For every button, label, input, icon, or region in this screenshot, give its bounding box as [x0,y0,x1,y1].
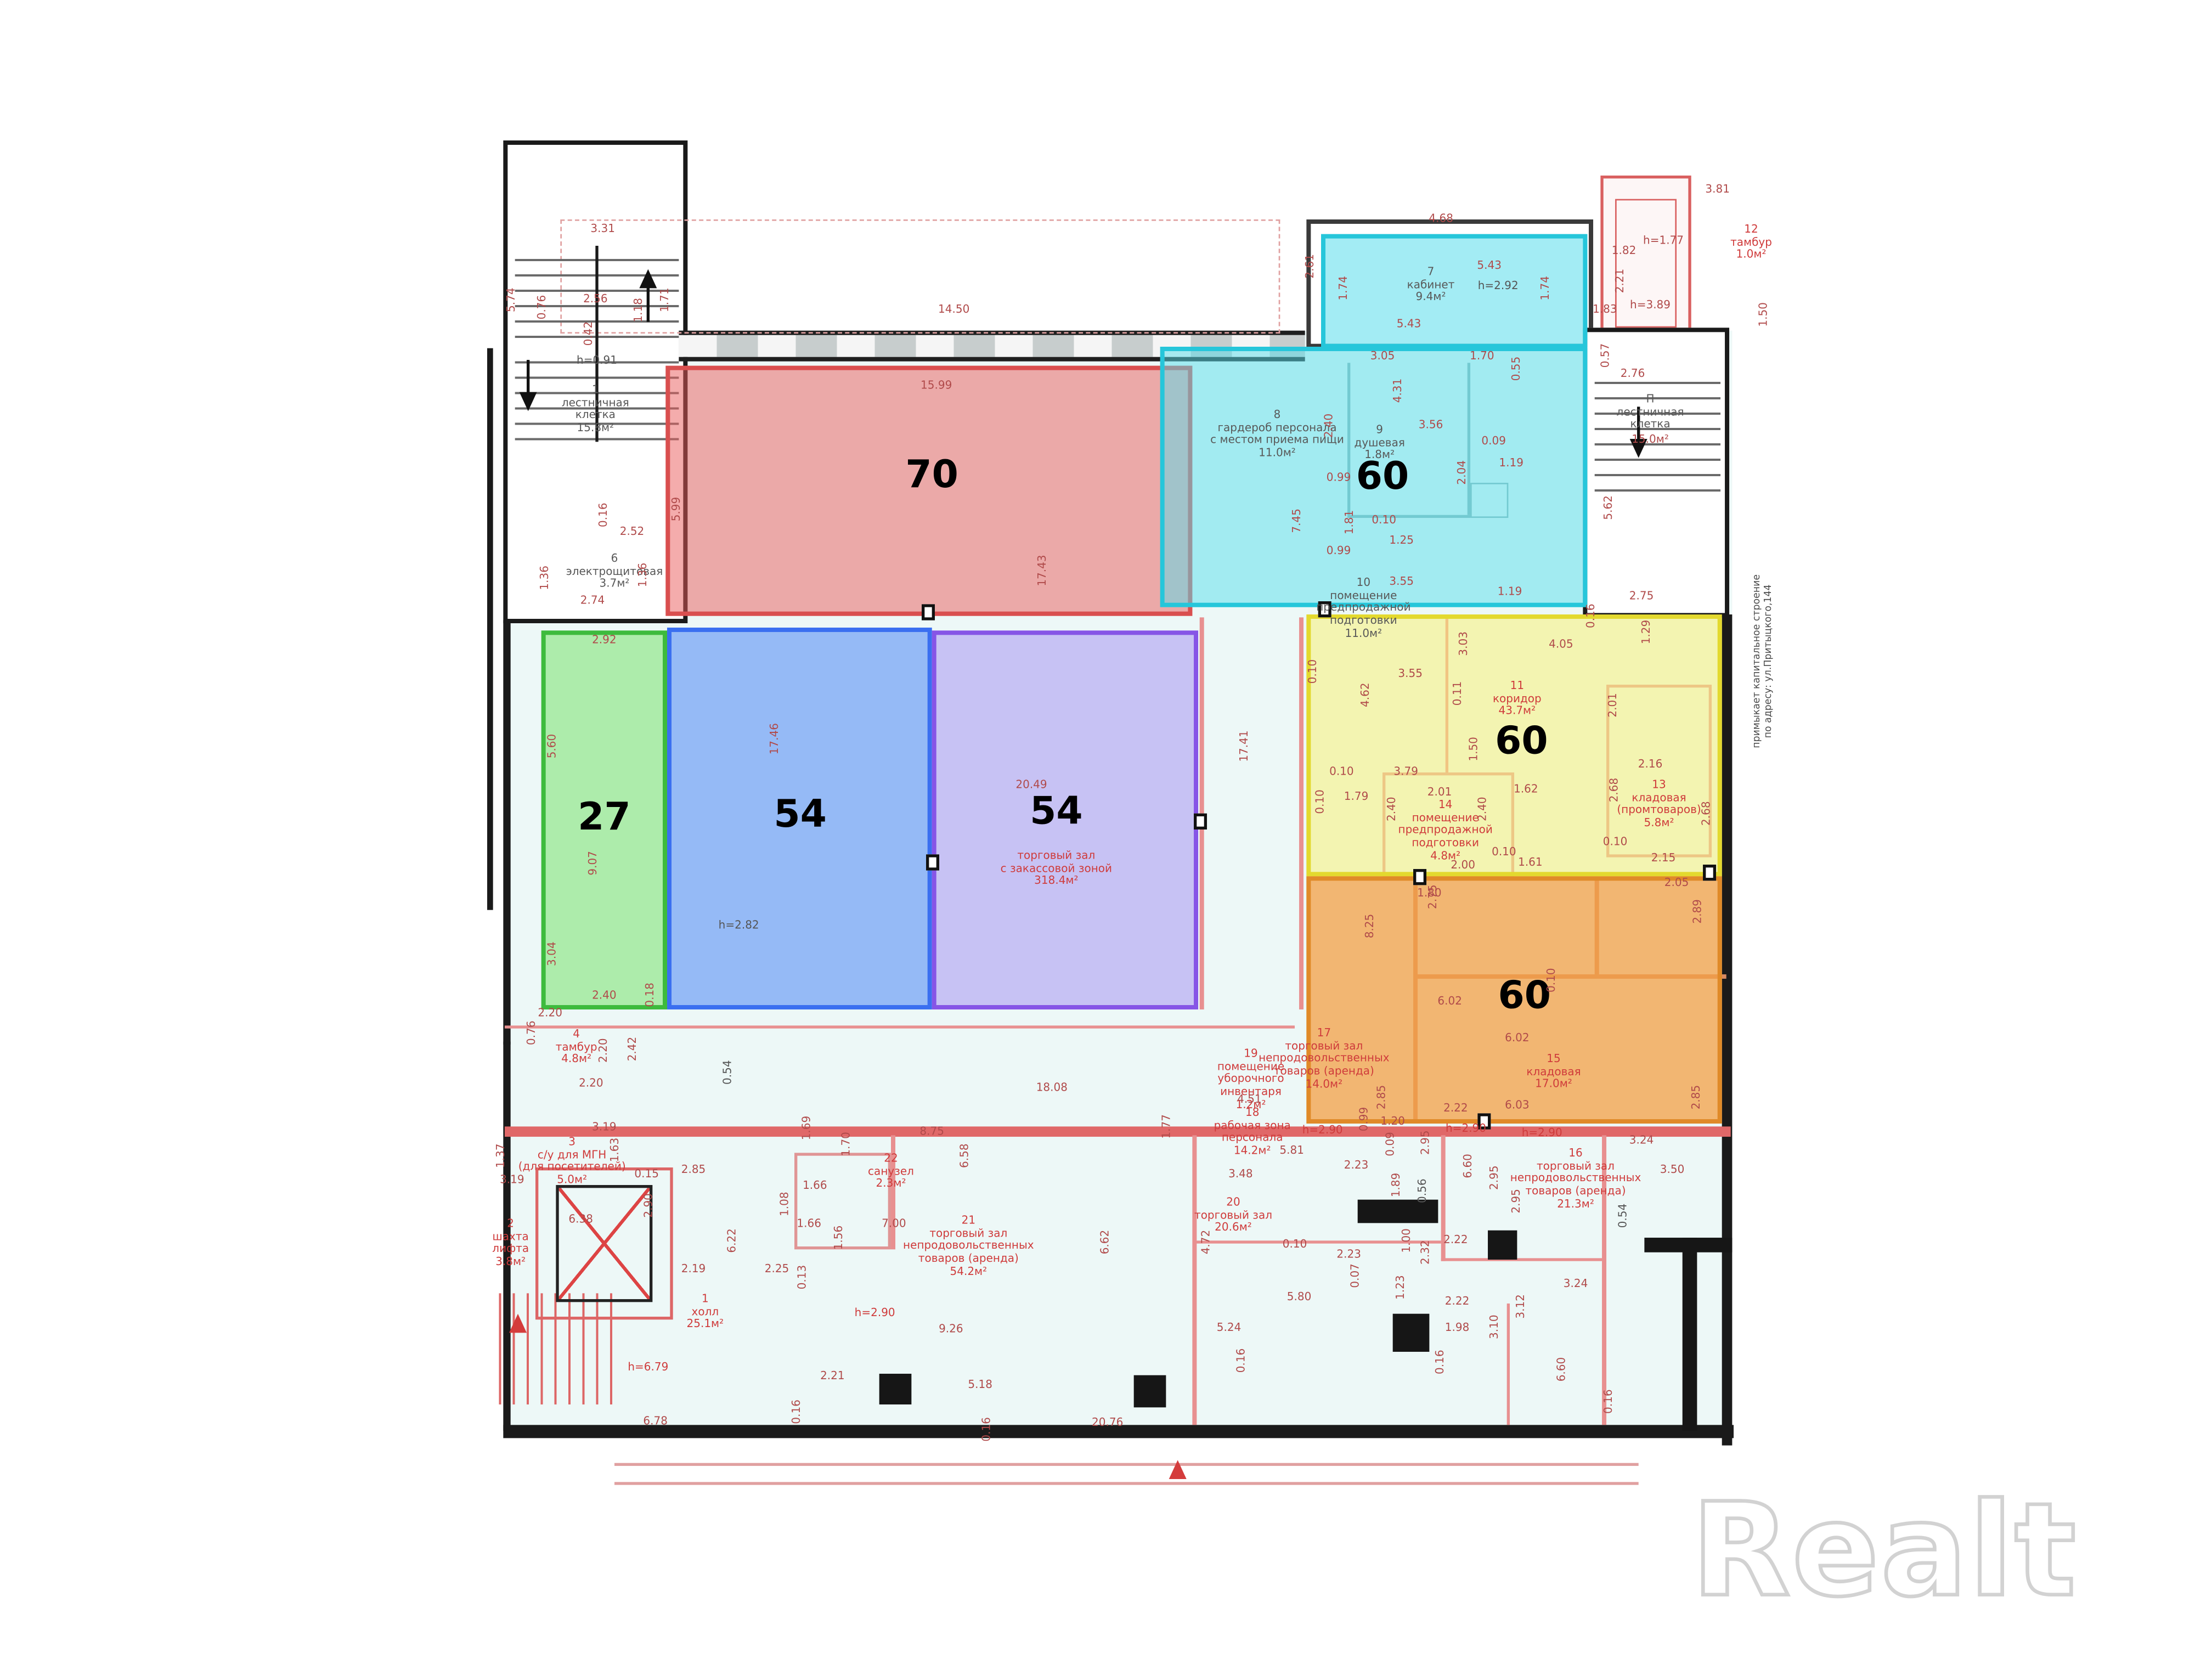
plan-annotation: 2.90 [644,1193,656,1218]
plan-annotation: 2 шахта лифта 3.8м² [492,1218,529,1269]
plan-annotation: 6.03 [1505,1100,1530,1113]
plan-annotation: 2.95 [1489,1165,1502,1190]
plan-annotation: 6.62 [1100,1230,1113,1255]
plan-annotation: 1.83 [1593,304,1617,317]
plan-annotation: 0.10 [1307,659,1320,684]
plan-annotation: 0.10 [1372,515,1396,527]
plan-annotation: 0.76 [537,295,549,320]
plan-annotation: 0.09 [1481,436,1506,448]
plan-annotation: 2.92 [592,635,617,647]
plan-annotation: 8.25 [1364,914,1377,939]
plan-annotation: 17.46 [769,723,782,754]
plan-annotation: примыкает капитальное строение по адресу… [1751,574,1775,748]
plan-annotation: 2.22 [1445,1296,1470,1308]
plan-annotation: h=2.90 [1522,1127,1562,1140]
plan-annotation: 3.56 [1419,420,1443,432]
plan-annotation: 5.74 [506,287,518,312]
plan-annotation: 2.74 [580,595,605,608]
plan-annotation: 2.20 [598,1038,611,1063]
plan-annotation: h=3.89 [1630,300,1671,312]
plan-annotation: 1.89 [1391,1173,1403,1198]
plan-annotation: 4.72 [1201,1230,1214,1255]
plan-annotation: 27 [578,797,631,841]
plan-annotation: 19 помещение уборочного инвентаря 1.2м² [1217,1048,1284,1111]
plan-annotation: 5.18 [968,1379,992,1392]
plan-annotation: 3.50 [1660,1164,1685,1177]
plan-annotation: 2.21 [820,1370,845,1383]
plan-annotation: 60 [1356,456,1409,500]
plan-annotation: 3.03 [1458,631,1471,656]
plan-annotation: 4.05 [1549,639,1573,652]
plan-annotation: 4.68 [1429,213,1453,226]
plan-annotation: 2.23 [1344,1160,1369,1172]
plan-annotation: 22 санузел 2.3м² [868,1153,914,1191]
plan-annotation: 20.76 [1092,1417,1123,1430]
plan-annotation: 5.81 [1279,1145,1304,1158]
plan-annotation: 1.74 [1338,276,1351,301]
plan-annotation: 1.81 [1344,510,1357,535]
plan-annotation: 1.74 [1540,276,1553,301]
plan-annotation: 2.76 [1621,368,1645,381]
plan-annotation: 1.50 [1758,302,1771,327]
plan-annotation: 0.13 [797,1265,810,1290]
plan-annotation: 12 тамбур 1.0м² [1730,224,1772,262]
plan-annotation: 7.00 [882,1218,906,1231]
plan-annotation: 60 [1495,721,1548,765]
plan-annotation: 2.56 [583,294,608,306]
plan-annotation: 1.20 [1380,1116,1405,1128]
plan-annotation: 6.60 [1556,1357,1569,1382]
plan-annotation: 3.04 [547,941,560,966]
plan-annotation: 6.22 [727,1228,740,1253]
plan-annotation: 6.38 [568,1214,593,1227]
plan-annotation: 6.58 [960,1143,972,1168]
plan-annotation: 1.69 [802,1116,814,1141]
plan-annotation: 5.43 [1477,260,1502,273]
plan-annotation: 2.85 [681,1164,706,1177]
plan-annotation: 7 кабинет 9.4м² [1407,267,1455,304]
plan-annotation: 1.71 [659,287,672,312]
plan-annotation: 2.21 [1615,269,1627,294]
plan-annotation: 54 [774,794,827,838]
plan-annotation: 1.37 [495,1143,508,1168]
plan-annotation: 0.99 [1327,545,1351,558]
plan-annotation: 5.80 [1287,1291,1312,1304]
plan-annotation: 0.10 [1283,1239,1307,1251]
plan-annotation: 2.32 [1420,1240,1433,1265]
plan-annotation: 0.57 [1600,343,1613,368]
plan-annotation: 1.19 [1499,458,1523,470]
plan-annotation: 0.10 [1492,847,1516,859]
plan-annotation: 2.40 [1324,414,1336,438]
plan-annotation: 0.16 [981,1417,994,1442]
plan-annotation: 0.18 [645,983,657,1007]
plan-annotation: 2.85 [1691,1085,1703,1110]
plan-annotation: 6.02 [1437,996,1462,1008]
plan-annotation: 2.40 [592,990,617,1003]
plan-annotation: 0.54 [723,1060,735,1085]
plan-annotation: 1.19 [1498,586,1522,599]
plan-annotation: 2.23 [1336,1249,1361,1262]
plan-annotation: 2.20 [538,1008,562,1020]
plan-annotation: 2.95 [1511,1189,1523,1214]
plan-annotation: 6.60 [1463,1154,1475,1178]
plan-annotation: 3.19 [592,1122,617,1135]
plan-annotation: 1.80 [1417,888,1442,900]
plan-annotation: 4.31 [1392,379,1405,403]
plan-annotation: 0.42 [583,321,596,346]
plan-annotation: 3.19 [500,1175,524,1187]
plan-annotation: 1.25 [1389,535,1414,548]
plan-annotation: 3.24 [1629,1135,1654,1148]
plan-annotation: 8 гардероб персонала с местом приема пищ… [1210,409,1344,460]
plan-annotation: 1.18 [633,298,646,323]
plan-annotation: 9.07 [588,851,600,876]
plan-annotation: 6.78 [643,1416,668,1429]
plan-annotation: 8.75 [919,1126,944,1139]
plan-annotation: 1.70 [841,1132,854,1156]
realt-watermark-logo: Realt [1691,1475,2078,1626]
plan-annotation: 20 торговый зал 20.6м² [1194,1197,1272,1235]
plan-annotation: 14.50 [938,304,969,317]
plan-annotation: 4.51 [1237,1094,1262,1107]
plan-annotation: 1.79 [1344,791,1369,804]
plan-annotation: 2.16 [1638,759,1663,771]
plan-annotation: 11 коридор 43.7м² [1493,680,1542,718]
plan-annotation: 0.07 [1350,1263,1363,1288]
plan-annotation: 0.10 [1546,968,1559,992]
plan-annotation: 0.10 [1603,837,1628,849]
plan-annotation: 0.16 [791,1400,804,1424]
plan-annotation: 6.02 [1505,1032,1530,1045]
plan-annotation: 1.08 [780,1192,792,1216]
plan-annotation: 0.15 [634,1169,659,1181]
plan-annotation: 2.25 [765,1263,789,1276]
plan-annotation: 5.43 [1397,319,1421,331]
plan-annotation: 2.00 [1451,860,1475,872]
plan-annotation: 2.68 [1609,778,1622,803]
screenshot-stage: 70602754546060торговый зал с закассовой … [0,0,2212,1659]
plan-annotation: 17 торговый зал непродовольственных това… [1259,1028,1390,1091]
plan-annotation: 14 помещение предпродажной подготовки 4.… [1398,799,1493,862]
plan-annotation: 13 кладовая (промтоваров) 5.8м² [1617,780,1701,830]
plan-annotation: h=1.77 [1643,235,1684,248]
plan-annotation: 2.42 [627,1037,640,1062]
plan-annotation: h=2.92 [1478,280,1519,293]
plan-annotation: 16 торговый зал непродовольственных това… [1510,1148,1641,1211]
plan-annotation: 15.0м² [1632,434,1669,447]
plan-annotation: 0.11 [1452,681,1465,706]
plan-annotation: 4 тамбур 4.8м² [556,1029,597,1066]
plan-annotation: 70 [905,455,958,499]
plan-annotation: торговый зал с закассовой зоной 318.4м² [1001,850,1112,888]
plan-annotation: 18 рабочая зона персонала 14.2м² [1214,1107,1291,1158]
plan-annotation: 0.16 [1435,1350,1447,1374]
plan-annotation: 5.24 [1217,1322,1242,1335]
plan-annotation: h=2.90 [1302,1125,1343,1137]
plan-annotation: 3.55 [1398,668,1423,681]
plan-annotation: 2.40 [1477,797,1490,821]
plan-annotation: 1.23 [1395,1275,1408,1300]
plan-annotation: 2.22 [1443,1103,1468,1115]
plan-annotation: 3.24 [1564,1278,1588,1291]
plan-annotation: 3.79 [1393,766,1418,779]
plan-annotation: 1.77 [1161,1114,1174,1139]
plan-annotation: h=2.82 [719,920,759,933]
plan-annotation: 0.16 [1236,1348,1249,1373]
plan-annotation: 0.09 [1385,1132,1398,1156]
plan-annotation: 1.61 [1518,857,1543,870]
plan-annotation: h=0.91 [577,355,617,368]
plan-annotation: h=2.90 [855,1307,895,1320]
plan-annotation: 3.31 [590,223,615,236]
plan-annotation: 1.50 [1469,737,1481,761]
plan-annotation: h=6.79 [628,1362,668,1374]
plan-annotation: 2.05 [1664,877,1689,890]
plan-annotation: 17.41 [1239,730,1251,761]
plan-annotation: 5.60 [547,734,560,759]
plan-annotation: 0.16 [1603,1389,1616,1414]
plan-annotation: 1.29 [1641,620,1654,645]
plan-annotation: 1.70 [1470,351,1494,363]
plan-annotation: 5.99 [671,497,684,522]
plan-annotation: 1 лестничная клетка 15.8м² [562,385,629,435]
plan-annotation: 0.10 [1315,789,1328,814]
plan-annotation: 1.36 [539,566,552,590]
plan-annotation: 1 холл 25.1м² [687,1294,724,1331]
plan-annotation: 2.75 [1427,884,1440,909]
plan-annotation: 3.12 [1515,1294,1528,1319]
plan-annotation: 0.10 [1329,766,1354,779]
plan-annotation: 2.20 [579,1078,603,1091]
plan-annotation: 3.55 [1389,576,1414,589]
plan-annotation: 2.19 [681,1263,706,1276]
plan-annotation: 2.01 [1427,787,1452,799]
plan-annotation: 1.82 [1612,245,1637,258]
plan-annotation: 54 [1030,792,1083,836]
plan-annotation: 2.61 [1305,254,1317,279]
plan-annotation: 1.62 [1514,784,1538,797]
plan-annotation: 15 кладовая 17.0м² [1526,1053,1581,1091]
plan-annotation: 1.63 [610,1138,622,1163]
plan-annotation: 2.52 [620,526,645,539]
plan-annotation: 2.95 [1420,1130,1433,1155]
plan-annotation: 1.56 [833,1226,846,1250]
plan-annotation: 6 электрощитовая 3.7м² [566,553,663,591]
plan-annotation: 3.48 [1228,1169,1253,1181]
plan-annotation: 17.43 [1037,555,1049,586]
plan-annotation: 0.16 [1585,603,1598,628]
plan-annotation: 15.99 [921,380,952,393]
annotation-layer: 70602754546060торговый зал с закассовой … [0,0,2212,1659]
plan-annotation: 9 душевая 1.8м² [1355,425,1405,462]
plan-annotation: 2.01 [1607,693,1620,718]
plan-annotation: 2.22 [1443,1234,1468,1247]
plan-annotation: П лестничная клетка [1617,394,1684,432]
plan-annotation: 1.98 [1445,1322,1470,1335]
plan-annotation: 0.76 [526,1020,539,1045]
plan-annotation: 20.49 [1015,780,1047,792]
plan-annotation: 21 торговый зал непродовольственных това… [903,1215,1034,1278]
plan-annotation: 2.75 [1629,591,1654,603]
plan-annotation: 2.85 [1376,1085,1389,1110]
plan-annotation: 0.56 [1417,1178,1430,1203]
plan-annotation: 5.62 [1603,495,1616,520]
plan-annotation: 3.05 [1370,351,1395,363]
plan-annotation: 2.89 [1692,899,1705,924]
plan-annotation: 3.10 [1489,1314,1502,1339]
plan-annotation: 0.54 [1618,1204,1630,1228]
plan-annotation: 1.00 [1401,1228,1414,1253]
plan-annotation: 4.62 [1360,682,1373,707]
plan-annotation: 2.04 [1457,460,1469,485]
plan-annotation: 0.99 [1359,1107,1372,1132]
plan-annotation: 2.68 [1701,801,1714,826]
plan-annotation: 1.36 [637,563,650,588]
plan-annotation: 1.66 [797,1218,821,1231]
plan-annotation: 3 с/у для МГН (для посетителей) 5.0м² [518,1136,626,1187]
plan-annotation: h=2.90 [1446,1123,1486,1136]
floor-plan: 70602754546060торговый зал с закассовой … [0,0,2212,1659]
plan-annotation: 0.99 [1327,472,1351,485]
plan-annotation: 10 помещение предпродажной подготовки 11… [1316,577,1410,640]
plan-annotation: 2.40 [1386,797,1399,821]
plan-annotation: 3.81 [1705,184,1730,196]
plan-annotation: 2.15 [1651,853,1676,865]
plan-annotation: 7.45 [1291,509,1304,533]
plan-annotation: 0.16 [598,503,611,527]
plan-annotation: 9.26 [939,1324,963,1336]
plan-annotation: 60 [1498,976,1551,1020]
plan-annotation: 1.66 [803,1180,827,1193]
plan-annotation: 0.55 [1511,357,1523,381]
plan-annotation: 18.08 [1036,1082,1068,1095]
